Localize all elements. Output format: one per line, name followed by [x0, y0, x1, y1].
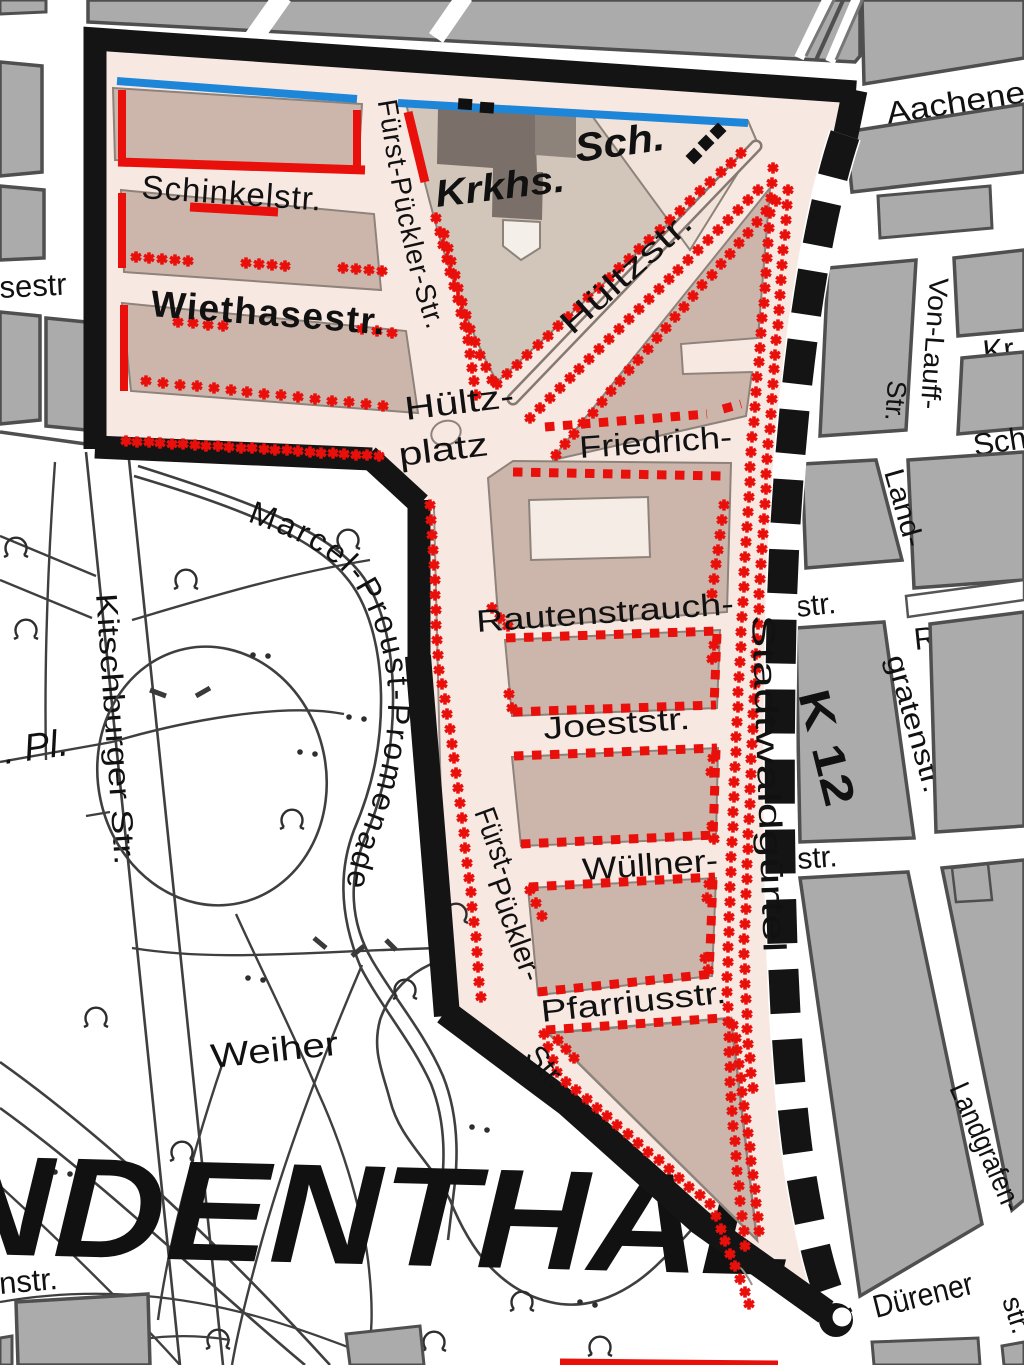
svg-text:sestr: sestr: [0, 267, 67, 305]
svg-text:str.: str.: [796, 840, 838, 876]
svg-text:str.: str.: [794, 587, 837, 624]
svg-text:Str.: Str.: [879, 380, 912, 423]
